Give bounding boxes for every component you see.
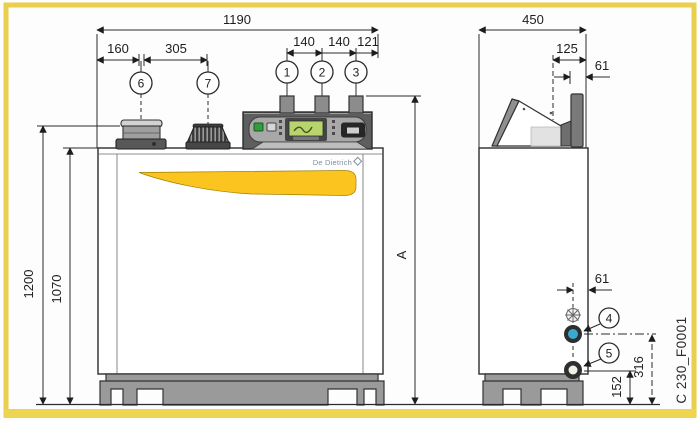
flue-collar (116, 120, 166, 149)
dim-conn-edge-label: 121 (357, 34, 379, 49)
callout-3-number: 3 (353, 66, 360, 80)
callout-connection-1: 1 (276, 61, 298, 96)
dim-cap-spacing-label: 305 (165, 41, 187, 56)
dim-jacket-height: 1070 (49, 148, 98, 404)
ribbed-cap (186, 124, 230, 149)
dim-connection-offset-label: 61 (595, 271, 609, 286)
dim-connection-height-label: A (394, 250, 409, 259)
dim-flue-offset: 160 (97, 41, 139, 66)
panel-ledge (252, 142, 368, 149)
connection-stubs (280, 96, 363, 113)
connection-5-port (564, 361, 582, 379)
callout-flue-outlet: 6 (130, 61, 152, 120)
connection-4-port (564, 325, 582, 343)
callout-7-number: 7 (205, 77, 212, 91)
callout-1-number: 1 (284, 66, 291, 80)
callout-connection-4: 4 (584, 308, 619, 331)
front-view: 1190 160 305 140 140 121 (21, 12, 421, 405)
dim-cap-spacing: 305 (144, 41, 207, 66)
callout-connection-2: 2 (311, 61, 333, 96)
callout-2-number: 2 (319, 66, 326, 80)
dim-total-width-label: 1190 (223, 12, 251, 27)
side-panel-display-profile (531, 127, 561, 146)
callout-5-number: 5 (606, 347, 613, 361)
flue-pipe (571, 94, 583, 147)
dim-flue-offset-label: 160 (107, 41, 129, 56)
callout-6-number: 6 (138, 77, 145, 91)
panel-gray-button (267, 123, 276, 131)
dim-conn4-height-label: 316 (631, 356, 646, 378)
stub-1 (280, 96, 294, 113)
dim-conn5-height-label: 152 (609, 376, 624, 398)
lcd-display (289, 121, 323, 136)
dim-total-depth: 450 (479, 12, 586, 30)
dim-conn-spacing-2-label: 140 (328, 34, 350, 49)
brand-logo-text: De Dietrich (313, 158, 352, 167)
control-panel (243, 112, 372, 149)
dim-jacket-height-label: 1070 (49, 275, 64, 304)
dim-pipe-edge: 61 (554, 58, 610, 84)
frame-bottom-band (4, 409, 696, 418)
dim-conn4-height: 316 (631, 335, 652, 404)
callout-filling-cap: 7 (197, 61, 219, 125)
callout-connection-5: 5 (584, 343, 619, 366)
callout-4-number: 4 (606, 312, 613, 326)
dim-pipe-edge-label: 61 (595, 58, 609, 73)
front-plinth (100, 374, 384, 405)
pipe-support-wedge (561, 121, 571, 146)
diagram-svg: 1190 160 305 140 140 121 (0, 0, 700, 421)
dim-total-width: 1190 (97, 12, 378, 30)
boiler-dimension-drawing: 1190 160 305 140 140 121 (0, 0, 700, 421)
dim-conn5-height: 152 (584, 371, 636, 404)
callout-connection-3: 3 (345, 61, 367, 96)
dim-total-depth-label: 450 (522, 12, 544, 27)
dim-connection-spacings: 140 140 121 (287, 34, 379, 61)
dim-conn-spacing-1-label: 140 (293, 34, 315, 49)
part-number: C 230_F0001 (674, 316, 689, 403)
dim-pipe-offset-label: 125 (556, 41, 578, 56)
stub-3 (349, 96, 363, 113)
panel-switch-slot (347, 128, 359, 134)
panel-screw-2 (550, 112, 553, 115)
side-plinth (483, 374, 583, 405)
stub-2 (315, 96, 329, 113)
panel-green-button (254, 123, 263, 131)
side-view: 450 125 61 (479, 12, 656, 405)
panel-button-strip (293, 137, 319, 141)
dim-total-height-label: 1200 (21, 270, 36, 299)
panel-screw-1 (523, 108, 526, 111)
